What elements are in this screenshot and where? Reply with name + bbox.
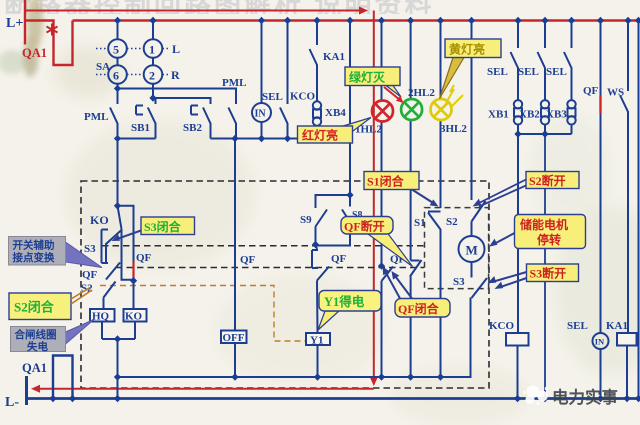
svg-text:S3闭合: S3闭合 xyxy=(144,219,182,234)
svg-text:5: 5 xyxy=(113,43,119,57)
svg-text:1: 1 xyxy=(149,43,155,57)
svg-text:XB4: XB4 xyxy=(325,107,346,119)
svg-text:绿灯灭: 绿灯灭 xyxy=(349,70,386,85)
svg-text:SEL: SEL xyxy=(262,91,283,103)
svg-text:QF: QF xyxy=(331,253,347,265)
svg-text:L: L xyxy=(172,42,180,56)
svg-text:Y1得电: Y1得电 xyxy=(324,294,365,309)
svg-text:QA1: QA1 xyxy=(22,46,47,60)
svg-text:KA1: KA1 xyxy=(323,51,345,63)
svg-text:S3: S3 xyxy=(453,276,465,288)
svg-text:QF: QF xyxy=(583,85,599,97)
svg-text:SA: SA xyxy=(96,61,110,73)
svg-text:SB2: SB2 xyxy=(183,122,202,134)
svg-text:PML: PML xyxy=(222,77,246,89)
svg-text:QF: QF xyxy=(136,252,152,264)
svg-text:6: 6 xyxy=(113,69,119,83)
svg-text:合闸线圈: 合闸线圈 xyxy=(14,328,57,341)
svg-text:WS: WS xyxy=(607,87,624,99)
svg-text:2HL2: 2HL2 xyxy=(408,87,435,99)
svg-text:KA1: KA1 xyxy=(606,320,628,332)
svg-text:SEL: SEL xyxy=(567,320,588,332)
svg-text:OFF: OFF xyxy=(223,332,245,344)
svg-text:KO: KO xyxy=(90,213,109,227)
svg-text:S1: S1 xyxy=(414,217,426,229)
svg-text:XB2: XB2 xyxy=(519,109,540,121)
svg-text:停转: 停转 xyxy=(537,232,561,247)
svg-text:开关辅助: 开关辅助 xyxy=(13,239,55,252)
svg-text:L-: L- xyxy=(5,395,19,410)
svg-text:黄灯亮: 黄灯亮 xyxy=(449,42,485,57)
svg-text:SEL: SEL xyxy=(546,66,567,78)
svg-text:IN: IN xyxy=(595,337,605,347)
svg-text:KCO: KCO xyxy=(290,91,316,103)
svg-text:储能电机: 储能电机 xyxy=(520,217,568,232)
svg-text:QA1: QA1 xyxy=(22,361,47,375)
svg-text:QF: QF xyxy=(240,254,256,266)
svg-text:接点变换: 接点变换 xyxy=(13,251,55,264)
svg-text:S3: S3 xyxy=(84,243,96,255)
svg-text:HQ: HQ xyxy=(92,311,110,323)
svg-text:SEL: SEL xyxy=(487,66,508,78)
svg-text:红灯亮: 红灯亮 xyxy=(302,128,338,143)
svg-text:IN: IN xyxy=(255,109,267,120)
svg-text:KCO: KCO xyxy=(489,320,515,332)
svg-text:M: M xyxy=(466,243,478,258)
svg-text:S2闭合: S2闭合 xyxy=(14,300,55,315)
svg-text:SEL: SEL xyxy=(518,66,539,78)
svg-text:QF断开: QF断开 xyxy=(344,219,385,234)
svg-text:KO: KO xyxy=(125,311,143,323)
svg-text:S2: S2 xyxy=(446,216,458,228)
svg-text:SB1: SB1 xyxy=(131,122,150,134)
svg-text:QF: QF xyxy=(82,269,98,281)
svg-text:失电: 失电 xyxy=(27,340,48,353)
svg-text:S2断开: S2断开 xyxy=(529,173,566,188)
svg-text:3HL2: 3HL2 xyxy=(440,123,467,135)
svg-text:S9: S9 xyxy=(300,214,312,226)
svg-text:R: R xyxy=(171,68,180,82)
svg-text:S1闭合: S1闭合 xyxy=(367,174,405,189)
svg-text:2: 2 xyxy=(149,69,155,83)
svg-text:PML: PML xyxy=(84,111,108,123)
svg-text:QF闭合: QF闭合 xyxy=(398,301,440,316)
svg-text:L+: L+ xyxy=(6,16,23,31)
svg-text:XB3: XB3 xyxy=(546,109,567,121)
svg-text:Y1: Y1 xyxy=(310,335,323,347)
svg-text:XB1: XB1 xyxy=(488,109,509,121)
svg-text:电力实事: 电力实事 xyxy=(552,387,619,407)
svg-text:S3断开: S3断开 xyxy=(530,266,567,281)
